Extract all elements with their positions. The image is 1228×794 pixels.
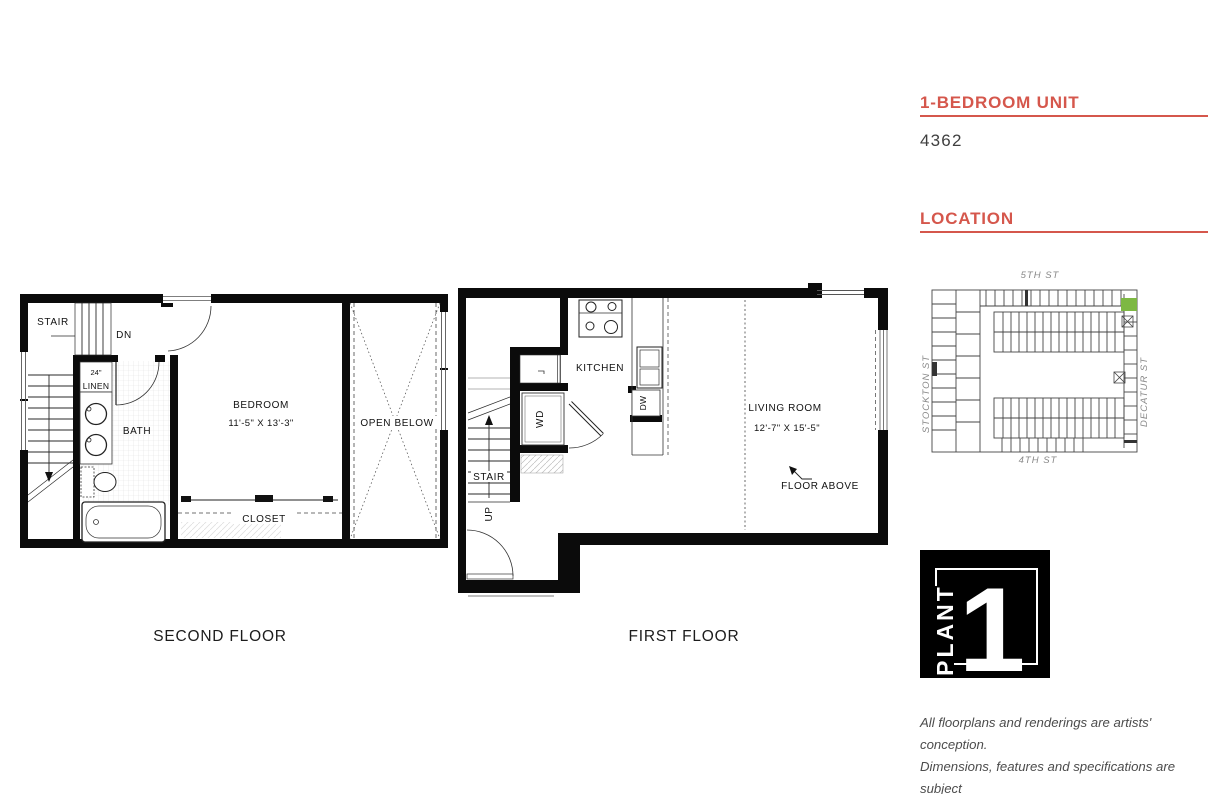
site-map-building — [932, 290, 1137, 452]
window-top — [817, 291, 864, 295]
up-arrow — [485, 415, 493, 425]
bath-label: BATH — [123, 426, 151, 437]
floor-above-leader — [789, 466, 812, 479]
stair-label-first: STAIR — [473, 472, 505, 483]
bathtub — [82, 502, 165, 542]
wd-label: WD — [535, 410, 546, 428]
logo-brand-text: PLANT — [932, 584, 958, 676]
street-label-4th: 4TH ST — [1019, 455, 1058, 466]
disclaimer: All floorplans and renderings are artist… — [920, 712, 1212, 794]
curb-hatch — [521, 455, 563, 473]
stove — [579, 300, 622, 337]
street-label-stockton: STOCKTON ST — [921, 355, 932, 433]
location-heading-rule — [920, 231, 1208, 233]
first-floor-caption: FIRST FLOOR — [584, 628, 784, 646]
bedroom-door-arc — [168, 306, 211, 351]
mech-closet — [520, 355, 561, 383]
bath-vanity — [80, 392, 112, 464]
unit-heading-rule — [920, 115, 1208, 117]
hall-door — [569, 402, 604, 449]
street-label-5th: 5TH ST — [1021, 270, 1060, 281]
second-floor-caption: SECOND FLOOR — [120, 628, 320, 646]
unit-number: 4362 — [920, 131, 963, 151]
bedroom-dims: 11'-5" X 13'-3" — [228, 418, 293, 429]
up-label: UP — [484, 506, 495, 521]
window-right — [876, 330, 888, 430]
location-heading: LOCATION — [920, 209, 1014, 229]
stair-label: STAIR — [37, 317, 69, 328]
site-map: 5TH ST 4TH ST STOCKTON ST DECATUR ST — [918, 264, 1210, 470]
closet-label: CLOSET — [242, 514, 286, 525]
plant-logo: PLANT 1 — [920, 550, 1050, 678]
door-header — [163, 297, 211, 301]
first-floor-stairs — [468, 378, 510, 502]
street-label-decatur: DECATUR ST — [1139, 357, 1150, 427]
site-map-accents — [932, 290, 1137, 443]
second-floor-plan: STAIR DN 24" LINEN BATH BEDROOM 11'-5" X… — [18, 290, 450, 552]
window-right — [442, 312, 446, 430]
floor-above-label: FLOOR ABOVE — [781, 481, 859, 492]
dn-label: DN — [116, 330, 132, 341]
disclaimer-line-2: Dimensions, features and specifications … — [920, 756, 1212, 794]
refrigerator — [637, 347, 662, 388]
kitchen-label: KITCHEN — [576, 363, 624, 374]
unit-type-heading: 1-BEDROOM UNIT — [920, 93, 1079, 113]
bedroom-label: BEDROOM — [233, 400, 289, 411]
living-room-label: LIVING ROOM — [748, 403, 821, 414]
first-floor-plan: KITCHEN DW WD STAIR UP LIVING ROOM 12'-7… — [456, 283, 890, 601]
open-below-label: OPEN BELOW — [360, 418, 433, 429]
disclaimer-line-1: All floorplans and renderings are artist… — [920, 712, 1212, 756]
linen-label: LINEN — [83, 381, 110, 391]
unit-location-highlight — [1121, 298, 1137, 311]
shelf-width-label: 24" — [90, 368, 101, 377]
elevator-symbols — [1114, 316, 1133, 383]
dw-label: DW — [638, 396, 648, 411]
floorplan-sheet: STAIR DN 24" LINEN BATH BEDROOM 11'-5" X… — [0, 0, 1228, 794]
living-room-dims: 12'-7" X 15'-5" — [754, 423, 820, 434]
logo-number: 1 — [959, 563, 1026, 678]
